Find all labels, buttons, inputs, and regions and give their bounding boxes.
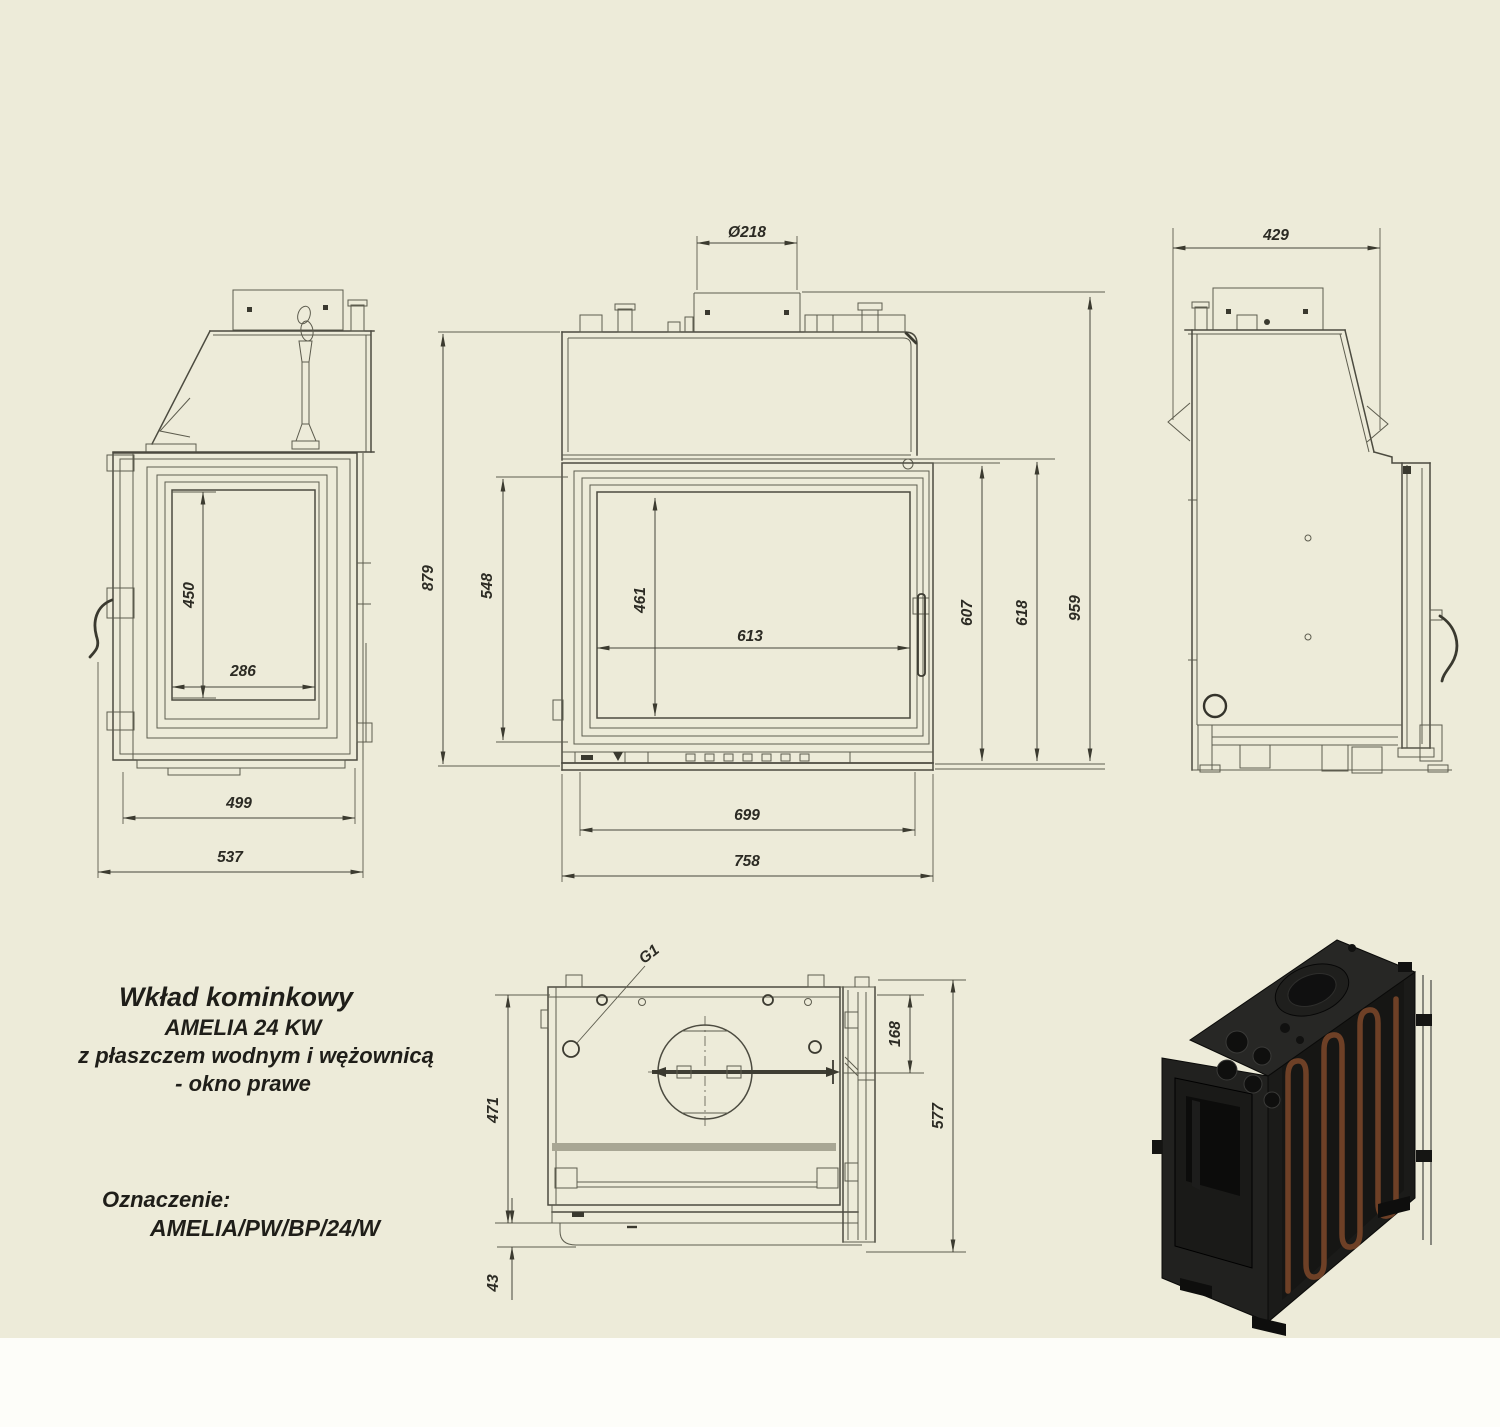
product-model: AMELIA 24 KW	[164, 1015, 324, 1040]
dim-label-door-height-right: 607	[959, 599, 976, 626]
dim-label-glass-width: 286	[229, 663, 256, 680]
dim-label-inner-width: 699	[734, 807, 760, 824]
dim-label-glass-height: 450	[181, 582, 198, 609]
dim-label-body-height-right: 618	[1014, 600, 1031, 626]
dim-label-body-depth: 499	[225, 795, 252, 812]
dim-label-door-height-left: 548	[479, 573, 496, 599]
dim-label-glass-width: 613	[737, 628, 763, 645]
product-title: Wkład kominkowy	[119, 982, 355, 1012]
drawing-sheet: 450 286 499 537	[0, 0, 1500, 1427]
product-window-note: - okno prawe	[175, 1071, 311, 1096]
dim-label-total-height-right: 959	[1067, 595, 1084, 621]
dim-label-total-width: 758	[734, 853, 760, 870]
designation-value: AMELIA/PW/BP/24/W	[149, 1215, 382, 1241]
dim-label-total-depth: 577	[930, 1102, 947, 1129]
dim-label-front-step: 43	[485, 1274, 502, 1293]
dim-label-flue-center-offset: 168	[887, 1021, 904, 1047]
product-subtitle: z płaszczem wodnym i wężownicą	[77, 1043, 434, 1068]
dim-label-top-depth: 429	[1262, 227, 1289, 244]
dim-label-glass-height: 461	[632, 587, 649, 614]
dim-label-body-depth: 471	[485, 1097, 502, 1124]
designation-label: Oznaczenie:	[102, 1187, 230, 1212]
dim-label-total-depth: 537	[217, 849, 244, 866]
dim-label-flue-diameter: Ø218	[728, 224, 766, 241]
dim-label-total-height-left: 879	[420, 565, 437, 591]
technical-drawing: 450 286 499 537	[0, 0, 1500, 1427]
